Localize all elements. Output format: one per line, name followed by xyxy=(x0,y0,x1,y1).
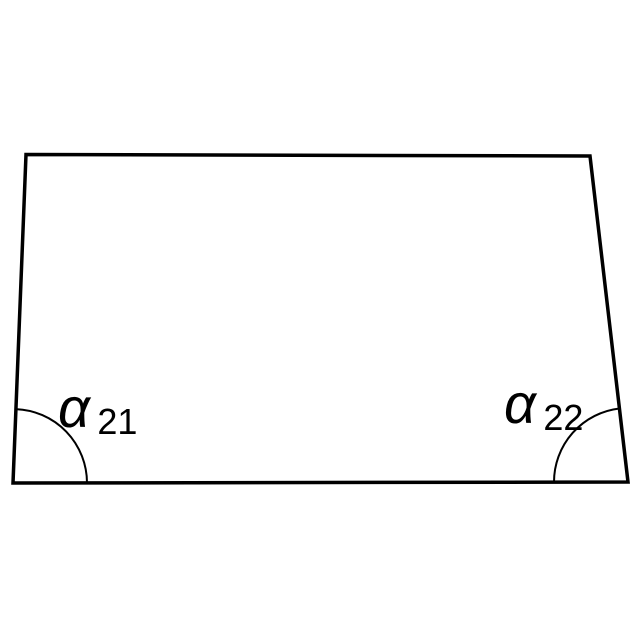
angle-label-right: α 22 xyxy=(504,372,583,438)
alpha-subscript-right: 22 xyxy=(543,397,583,438)
angle-label-left: α 21 xyxy=(58,376,137,442)
alpha-symbol-left: α xyxy=(58,376,92,439)
alpha-subscript-left: 21 xyxy=(97,401,137,442)
alpha-symbol-right: α xyxy=(504,372,538,435)
diagram-canvas: α 21 α 22 xyxy=(0,0,640,640)
geometry-diagram: α 21 α 22 xyxy=(0,0,640,640)
